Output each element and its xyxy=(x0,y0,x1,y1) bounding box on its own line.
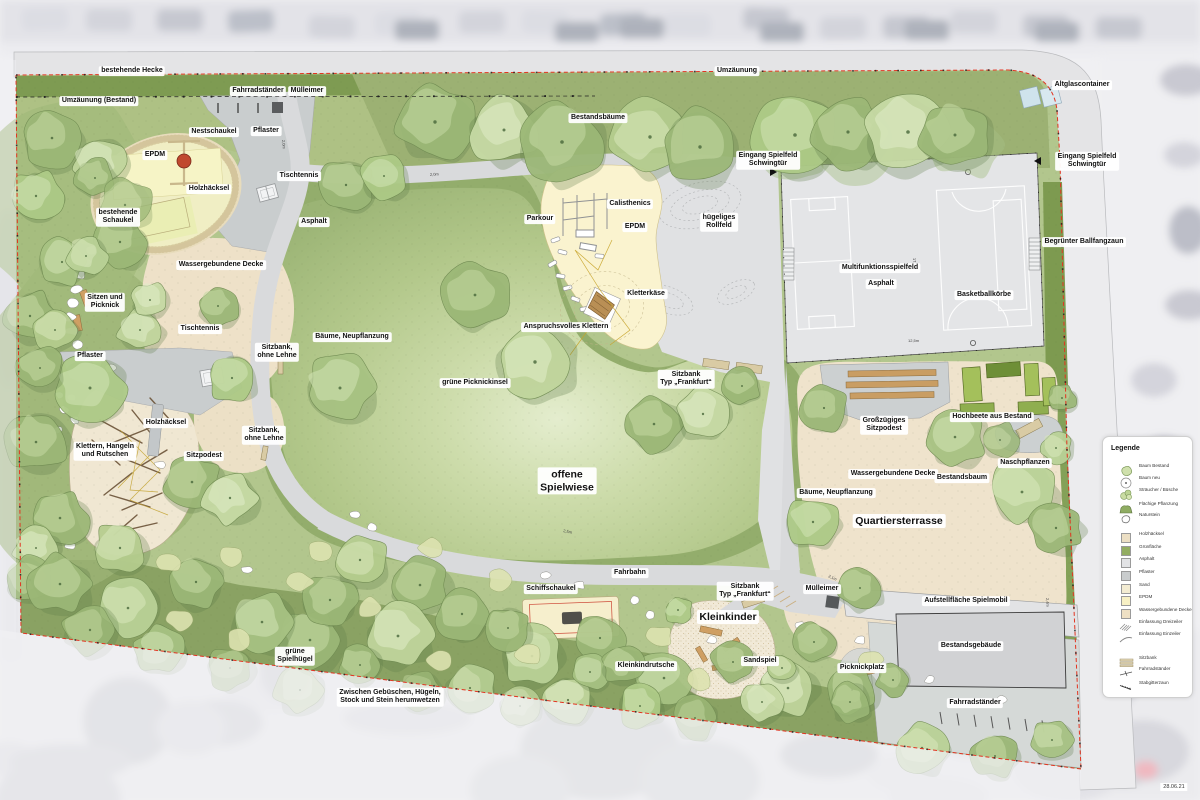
svg-text:12,5m: 12,5m xyxy=(908,338,920,343)
svg-text:2,4m: 2,4m xyxy=(1045,598,1050,608)
svg-text:2,0m: 2,0m xyxy=(430,171,440,177)
svg-text:2,0m: 2,0m xyxy=(281,140,287,150)
